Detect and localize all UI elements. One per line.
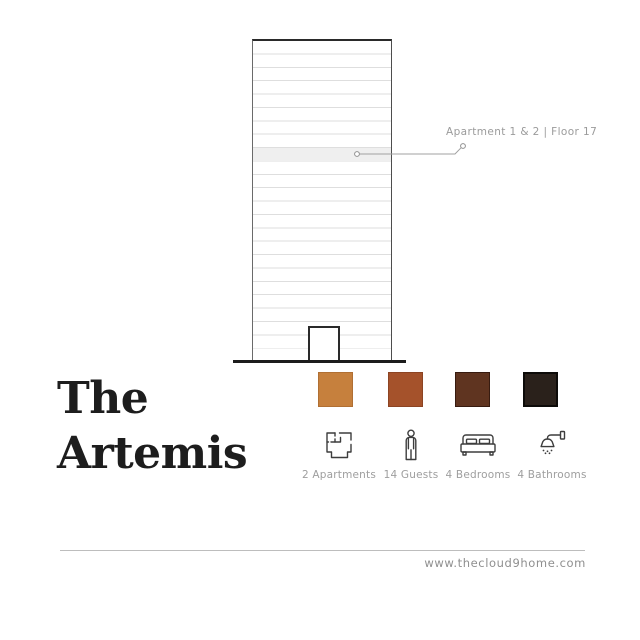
color-swatch-rust [388, 372, 423, 407]
color-swatch-camel [318, 372, 353, 407]
title-line-1: The [57, 371, 247, 426]
infographic-canvas: Apartment 1 & 2 | Floor 17 The Artemis 2… [0, 0, 640, 640]
stat-label: 4 Bathrooms [517, 469, 586, 481]
callout-label: Apartment 1 & 2 | Floor 17 [446, 126, 597, 138]
ground-line [233, 360, 406, 363]
building-entrance-door [308, 326, 340, 362]
page-title: The Artemis [57, 371, 247, 481]
shower-icon [534, 426, 570, 464]
stat-label: 4 Bedrooms [446, 469, 511, 481]
color-swatch-near-black [523, 372, 558, 407]
stat-label: 14 Guests [384, 469, 439, 481]
bed-icon [456, 426, 500, 464]
callout-connector-line [350, 138, 472, 160]
stat-bathrooms: 4 Bathrooms [506, 426, 598, 481]
footer-divider [60, 550, 585, 551]
floorplan-icon [321, 426, 357, 464]
title-line-2: Artemis [57, 426, 247, 481]
building-illustration [252, 39, 392, 362]
website-link[interactable]: www.thecloud9home.com [424, 556, 586, 570]
person-icon [393, 426, 429, 464]
color-swatch-dark-brown [455, 372, 490, 407]
